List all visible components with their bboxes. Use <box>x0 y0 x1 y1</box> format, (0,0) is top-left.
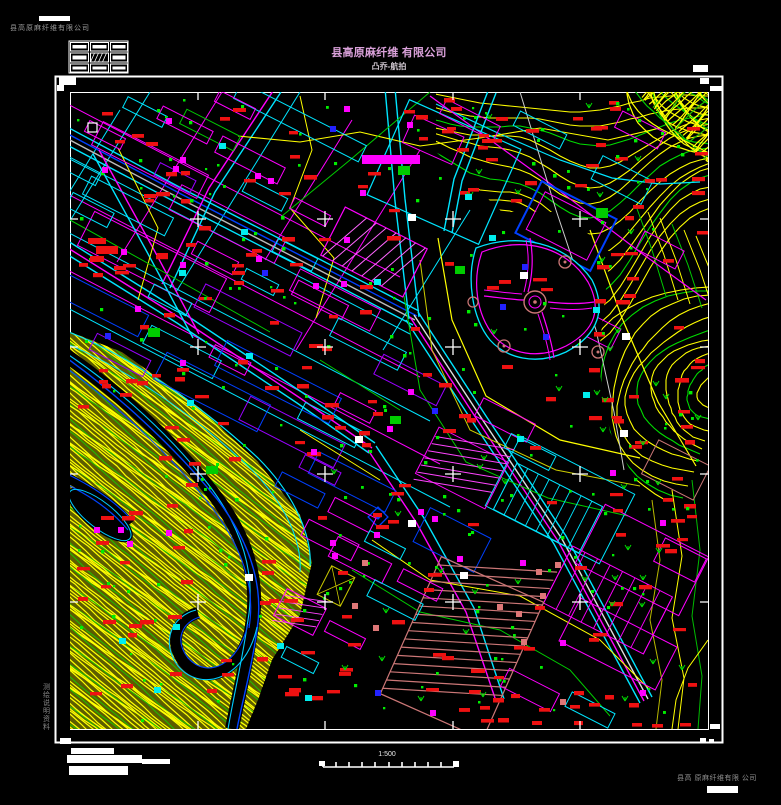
svg-text:资: 资 <box>43 714 50 723</box>
svg-text:县高原麻纤维 有限公司: 县高原麻纤维 有限公司 <box>331 45 446 59</box>
svg-text:明: 明 <box>43 707 50 715</box>
svg-text:1:500: 1:500 <box>378 751 396 758</box>
svg-text:料: 料 <box>43 722 50 731</box>
svg-text:绘: 绘 <box>43 690 50 699</box>
svg-text:县高原麻纤维有限公司: 县高原麻纤维有限公司 <box>10 23 90 32</box>
svg-text:县高 原麻纤维有限 公司: 县高 原麻纤维有限 公司 <box>677 773 757 782</box>
svg-text:凸乔-航拍: 凸乔-航拍 <box>372 61 407 71</box>
svg-text:说: 说 <box>43 698 50 707</box>
svg-text:测: 测 <box>43 683 50 691</box>
